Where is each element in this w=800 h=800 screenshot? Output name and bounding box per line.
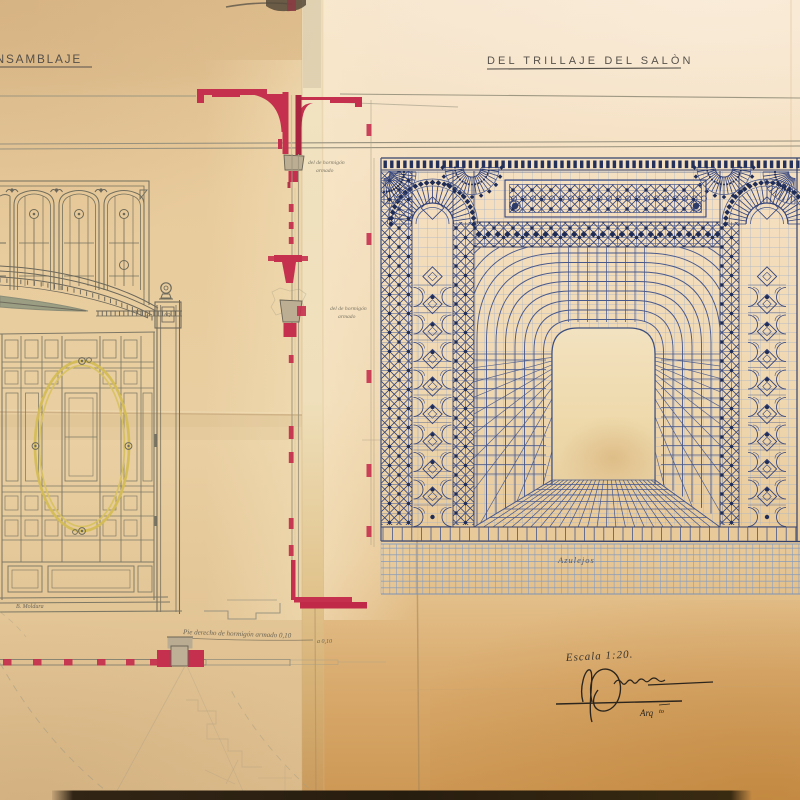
svg-text:Azulejos: Azulejos — [557, 555, 595, 565]
svg-text:DEL TRILLAJE DEL SALÒN: DEL TRILLAJE DEL SALÒN — [487, 54, 694, 67]
svg-text:armado: armado — [316, 168, 334, 174]
svg-text:AQ: AQ — [164, 312, 171, 317]
svg-text:B. Moldura: B. Moldura — [16, 604, 44, 610]
svg-text:del de hormigón: del de hormigón — [308, 160, 345, 166]
svg-text:to: to — [659, 708, 665, 715]
svg-text:ENSAMBLAJE: ENSAMBLAJE — [0, 52, 82, 66]
svg-text:a 0,10: a 0,10 — [317, 639, 332, 645]
svg-text:del de hormigón: del de hormigón — [330, 306, 367, 312]
svg-text:armado: armado — [338, 314, 356, 320]
svg-text:Arq: Arq — [639, 708, 654, 718]
